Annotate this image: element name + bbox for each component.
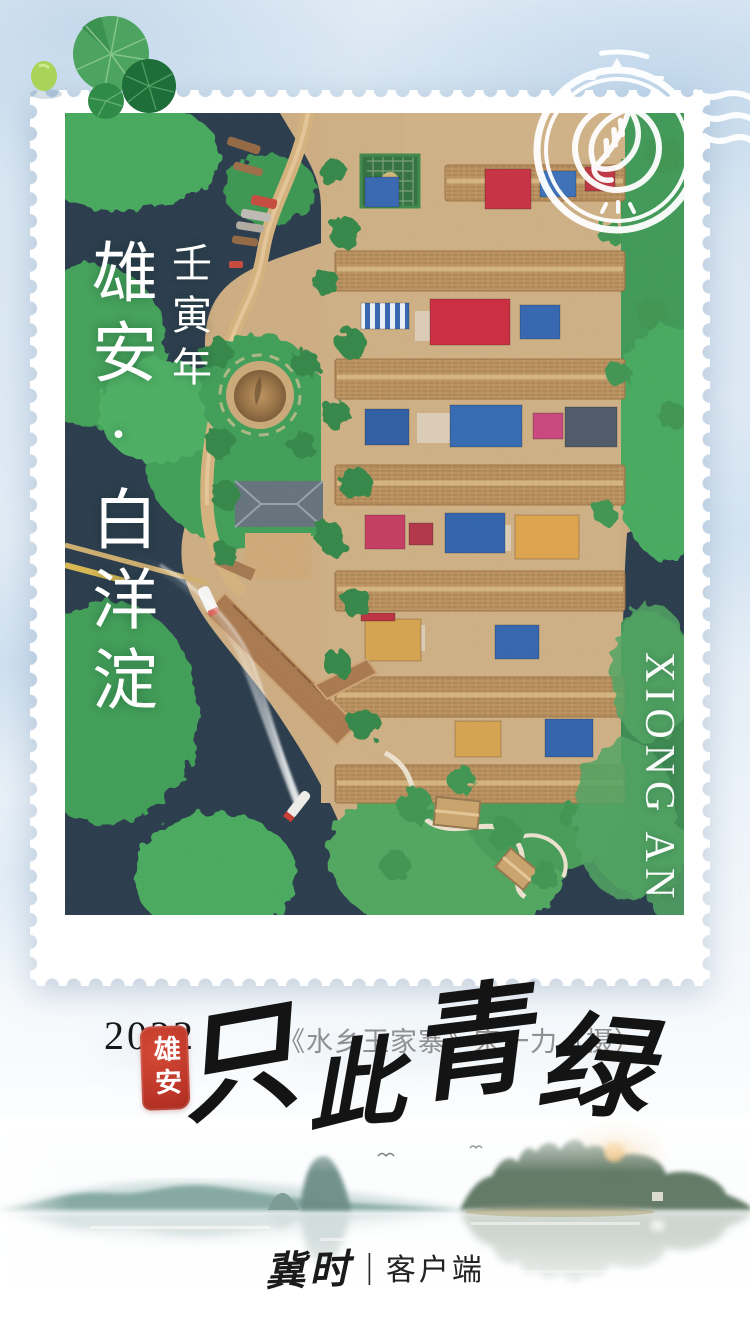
stamp-side-label: XIONG AN — [638, 652, 680, 904]
postage-stamp: 雄安·白洋淀 壬寅年 XIONG AN 2022 《水乡王家寨》宋一力（摄） — [30, 90, 710, 986]
aerial-photo-art — [65, 113, 684, 915]
stamp-title-vertical: 雄安·白洋淀 — [85, 238, 151, 725]
stamp-era-label: 壬寅年 — [168, 242, 208, 398]
slogan-char: 此 — [303, 1033, 406, 1136]
poster-canvas: { "stamp": { "title": "雄安·白洋淀", "era": "… — [0, 0, 750, 1333]
lily-pad-decoration — [6, 8, 206, 120]
footer-logo: 冀时 | 客户端 — [0, 1238, 750, 1296]
aerial-photo — [65, 113, 684, 915]
postmark-ornament — [588, 62, 662, 78]
slogan-char: 只 — [168, 995, 305, 1132]
slogan-char: 青 — [403, 976, 537, 1110]
brand-logo-text: 冀时 — [264, 1236, 354, 1297]
calligraphy-slogan: 只此青绿 — [176, 996, 676, 1186]
lily-pad-icon — [73, 16, 176, 119]
app-label: 客户端 — [386, 1245, 485, 1289]
logo-divider: | — [367, 1248, 372, 1287]
slogan-char: 绿 — [534, 1007, 654, 1127]
